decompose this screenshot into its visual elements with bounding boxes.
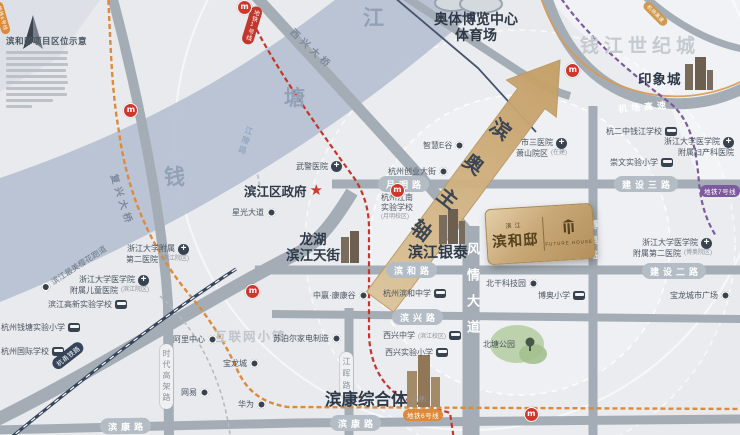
poi-label: 武警医院 — [296, 161, 328, 172]
school-bus-icon — [665, 127, 677, 136]
longhu-line2: 滨江天街 — [281, 248, 345, 264]
poi-dot-icon — [257, 400, 266, 409]
poi-label: 附属妇产科医院 — [664, 148, 734, 158]
school-bus-icon — [436, 348, 448, 357]
landmark-binkang-complex: 滨康综合体 (在建) — [325, 386, 427, 410]
poi-label: 杭州滨和中学 — [383, 288, 431, 299]
poi-dot-icon — [359, 291, 368, 300]
poi-label: 附属儿童医院 — [70, 286, 118, 296]
poi-label: 阿里中心 — [173, 334, 205, 345]
road-label-binkang: 滨康路 — [330, 415, 381, 431]
school-bus-icon — [573, 291, 585, 300]
poi-dot-icon — [250, 359, 259, 368]
road-label-jianshe2: 建设二路 — [642, 263, 706, 279]
school-bus-icon — [115, 300, 127, 309]
road-label-jianshe3: 建设三路 — [614, 176, 678, 192]
compass-icon — [20, 13, 46, 53]
river-char: 塘 — [284, 82, 305, 112]
metro-icon — [245, 284, 260, 299]
zone-century-city: 钱江世纪城 — [580, 31, 700, 58]
poi-label: 中赢·康康谷 — [313, 290, 356, 301]
poi-label: 宝龙城 — [223, 358, 247, 369]
poi-dot-icon — [721, 291, 730, 300]
poi-boao-school: 博奥小学 — [538, 290, 585, 301]
poi-zhihui-e-valley: 智慧E谷 — [423, 140, 464, 151]
school-bus-icon — [434, 289, 446, 298]
disclaimer-line — [6, 87, 65, 90]
poi-dot-icon — [208, 335, 217, 344]
landmark-yinxiangcheng: 印象城 — [638, 72, 682, 88]
poi-label: 崇文实验小学 — [610, 157, 658, 168]
poi-dot-icon — [439, 167, 448, 176]
disclaimer-line — [6, 81, 68, 84]
school-bus-icon — [52, 347, 64, 356]
poi-note: (滨江校区) — [418, 331, 446, 340]
poi-dot-icon — [332, 334, 341, 343]
poi-label: 北干科技园 — [486, 278, 526, 289]
poi-children-hospital: 浙江大学医学院 附属儿童医院(滨江院区) — [70, 275, 149, 296]
project-logo-card: 滨江 滨和邸 FUTURE HOUSE — [484, 203, 595, 265]
school-bus-icon — [661, 158, 673, 167]
project-name-label: 滨和邸 — [487, 228, 544, 252]
binkang-note: (在建) — [411, 394, 427, 403]
poi-baolongcheng: 宝龙城 — [223, 358, 259, 369]
poi-wujing-hospital: 武警医院 — [296, 161, 342, 172]
poi-label: 滨江高新实验学校 — [48, 299, 112, 310]
poi-gaoxin-school: 滨江高新实验学校 — [48, 299, 127, 310]
poi-label: 华为 — [238, 399, 254, 410]
road-label-binxing: 滨兴路 — [392, 309, 443, 325]
poi-supor: 苏泊尔家电制造 — [273, 333, 341, 344]
landmark-longhu-tianjie: 龙湖 滨江天街 — [281, 232, 345, 263]
poi-label: 杭二中钱江学校 — [606, 126, 662, 137]
metro-icon — [565, 63, 580, 78]
poi-dot-icon — [200, 388, 209, 397]
location-map: 滨和邸项目区位示意 钱 塘 江 钱江世纪城 互联网小镇 滨 奥 主 轴 月明路 … — [0, 0, 740, 435]
poi-huawei: 华为 — [238, 399, 266, 410]
poi-shisan-hospital: 市三医院 萧山院区(在建) — [516, 138, 567, 159]
poi-label: 苏泊尔家电制造 — [273, 333, 329, 344]
poi-note: (滨江院区) — [161, 256, 189, 264]
beitang-park-area2 — [519, 344, 547, 364]
poi-baolong-plaza: 宝龙城市广场 — [670, 290, 730, 301]
poi-label: 宝龙城市广场 — [670, 290, 718, 301]
poi-label: 附属第二医院 — [633, 249, 681, 259]
metro-icon — [237, 0, 252, 15]
hospital-cross-icon — [723, 137, 734, 148]
road-binxing — [272, 314, 740, 319]
poi-label: 西兴实验小学 — [385, 347, 433, 358]
poi-note: (月明校区) — [381, 214, 413, 222]
metro-label-line6: 地铁6号线 — [403, 409, 443, 421]
road-label-binhe: 滨和路 — [386, 262, 437, 278]
poi-qiantang-primary: 杭州钱塘实验小学 — [1, 322, 80, 333]
disclaimer-text-block — [6, 51, 68, 111]
pavilion-emblem-icon — [560, 219, 577, 235]
poi-xixing-middle-school: 西兴中学 (滨江校区) — [383, 330, 461, 341]
poi-label: 萧山院区 — [516, 149, 548, 159]
poi-label: 智慧E谷 — [423, 140, 452, 151]
disclaimer-line — [6, 51, 68, 54]
poi-label: 浙江大学医学院 — [664, 137, 720, 147]
metro-label-line7: 地铁7号线 — [700, 185, 740, 197]
disclaimer-line — [6, 99, 53, 102]
landmark-aoti-line1: 奥体博览中心 — [420, 11, 532, 27]
star-icon — [310, 183, 326, 199]
poi-beigan-tech-park: 北干科技园 — [486, 278, 538, 289]
poi-label: 浙江大学医学院 — [642, 238, 698, 248]
disclaimer-line — [6, 75, 67, 78]
poi-label: 实验学校 — [381, 203, 413, 213]
poi-label: 星光大道 — [232, 207, 264, 218]
disclaimer-line — [6, 93, 67, 96]
poi-beitang-park: 北塘公园 — [483, 339, 515, 350]
disclaimer-line — [6, 105, 32, 108]
binkang-label: 滨康综合体 — [325, 386, 408, 410]
poi-label: 博奥小学 — [538, 290, 570, 301]
poi-label: 市三医院 — [521, 138, 553, 148]
poi-netease: 网易 — [181, 387, 209, 398]
poi-note: (滨江院区) — [121, 287, 149, 295]
poi-dot-icon — [455, 141, 464, 150]
landmark-aoti: 奥体博览中心 体育场 — [420, 11, 532, 43]
school-bus-icon — [449, 331, 461, 340]
poi-label: 第二医院 — [126, 255, 158, 265]
map-canvas — [0, 0, 740, 435]
hospital-cross-icon — [701, 238, 712, 249]
poi-label: 北塘公园 — [483, 339, 515, 350]
landmark-aoti-line2: 体育场 — [420, 27, 532, 43]
metro-icon — [524, 407, 539, 422]
disclaimer-line — [6, 69, 66, 72]
project-en-label: FUTURE HOUSE — [545, 239, 594, 247]
longhu-line1: 龙湖 — [281, 232, 345, 248]
poi-zhongying-kangkanggu: 中赢·康康谷 — [313, 290, 368, 301]
hospital-cross-icon — [178, 244, 189, 255]
poi-binhe-middle-school: 杭州滨和中学 — [383, 288, 446, 299]
poi-fuchanke-hospital: 浙江大学医学院 附属妇产科医院 — [664, 137, 734, 158]
hospital-cross-icon — [138, 275, 149, 286]
road-label-shidai-viaduct: 时代高架路 — [160, 344, 173, 409]
poi-label: 杭州国际学校 — [1, 346, 49, 357]
metro-icon — [123, 103, 138, 118]
poi-label: 浙江大学附属 — [127, 244, 175, 254]
poi-label: 网易 — [181, 387, 197, 398]
landmark-binjiang-yintai: 滨江银泰 — [408, 244, 468, 261]
poi-note: (博奥院区) — [684, 250, 712, 258]
disclaimer-line — [6, 63, 68, 66]
poi-xingguang-avenue: 星光大道 — [232, 207, 276, 218]
metro-icon — [390, 183, 405, 198]
poi-zheda2-boao-hospital: 浙江大学医学院 附属第二医院(博奥院区) — [633, 238, 712, 259]
poi-label: 杭州钱塘实验小学 — [1, 322, 65, 333]
school-bus-icon — [68, 323, 80, 332]
poi-dot-icon — [267, 208, 276, 217]
river-char: 钱 — [164, 161, 185, 191]
poi-chongwen-school: 崇文实验小学 — [610, 157, 673, 168]
poi-zheda2-binjiang-hospital: 浙江大学附属 第二医院(滨江院区) — [126, 244, 189, 265]
hospital-cross-icon — [556, 138, 567, 149]
poi-ali-center: 阿里中心 — [173, 334, 217, 345]
poi-xixing-primary-school: 西兴实验小学 — [385, 347, 448, 358]
poi-note: (在建) — [551, 150, 567, 158]
project-emblem-block: FUTURE HOUSE — [543, 218, 593, 247]
poi-label: 西兴中学 — [383, 330, 415, 341]
map-title: 滨和邸项目区位示意 — [6, 35, 87, 47]
hospital-cross-icon — [331, 161, 342, 172]
poi-label: 杭州创业大街 — [388, 166, 436, 177]
road-label-binkang-west: 滨康路 — [100, 418, 151, 435]
poi-hangergzhong: 杭二中钱江学校 — [606, 126, 677, 137]
poi-international-school: 杭州国际学校 — [1, 346, 64, 357]
poi-label: 浙江大学医学院 — [79, 275, 135, 285]
project-name-block: 滨江 滨和邸 — [486, 219, 544, 252]
poi-chuangye-street: 杭州创业大街 — [388, 166, 448, 177]
poi-dot-icon — [529, 279, 538, 288]
district-gov-label: 滨江区政府 — [244, 181, 307, 200]
landmark-district-gov: 滨江区政府 — [244, 181, 326, 200]
disclaimer-line — [6, 57, 67, 60]
river-char: 江 — [363, 2, 384, 32]
